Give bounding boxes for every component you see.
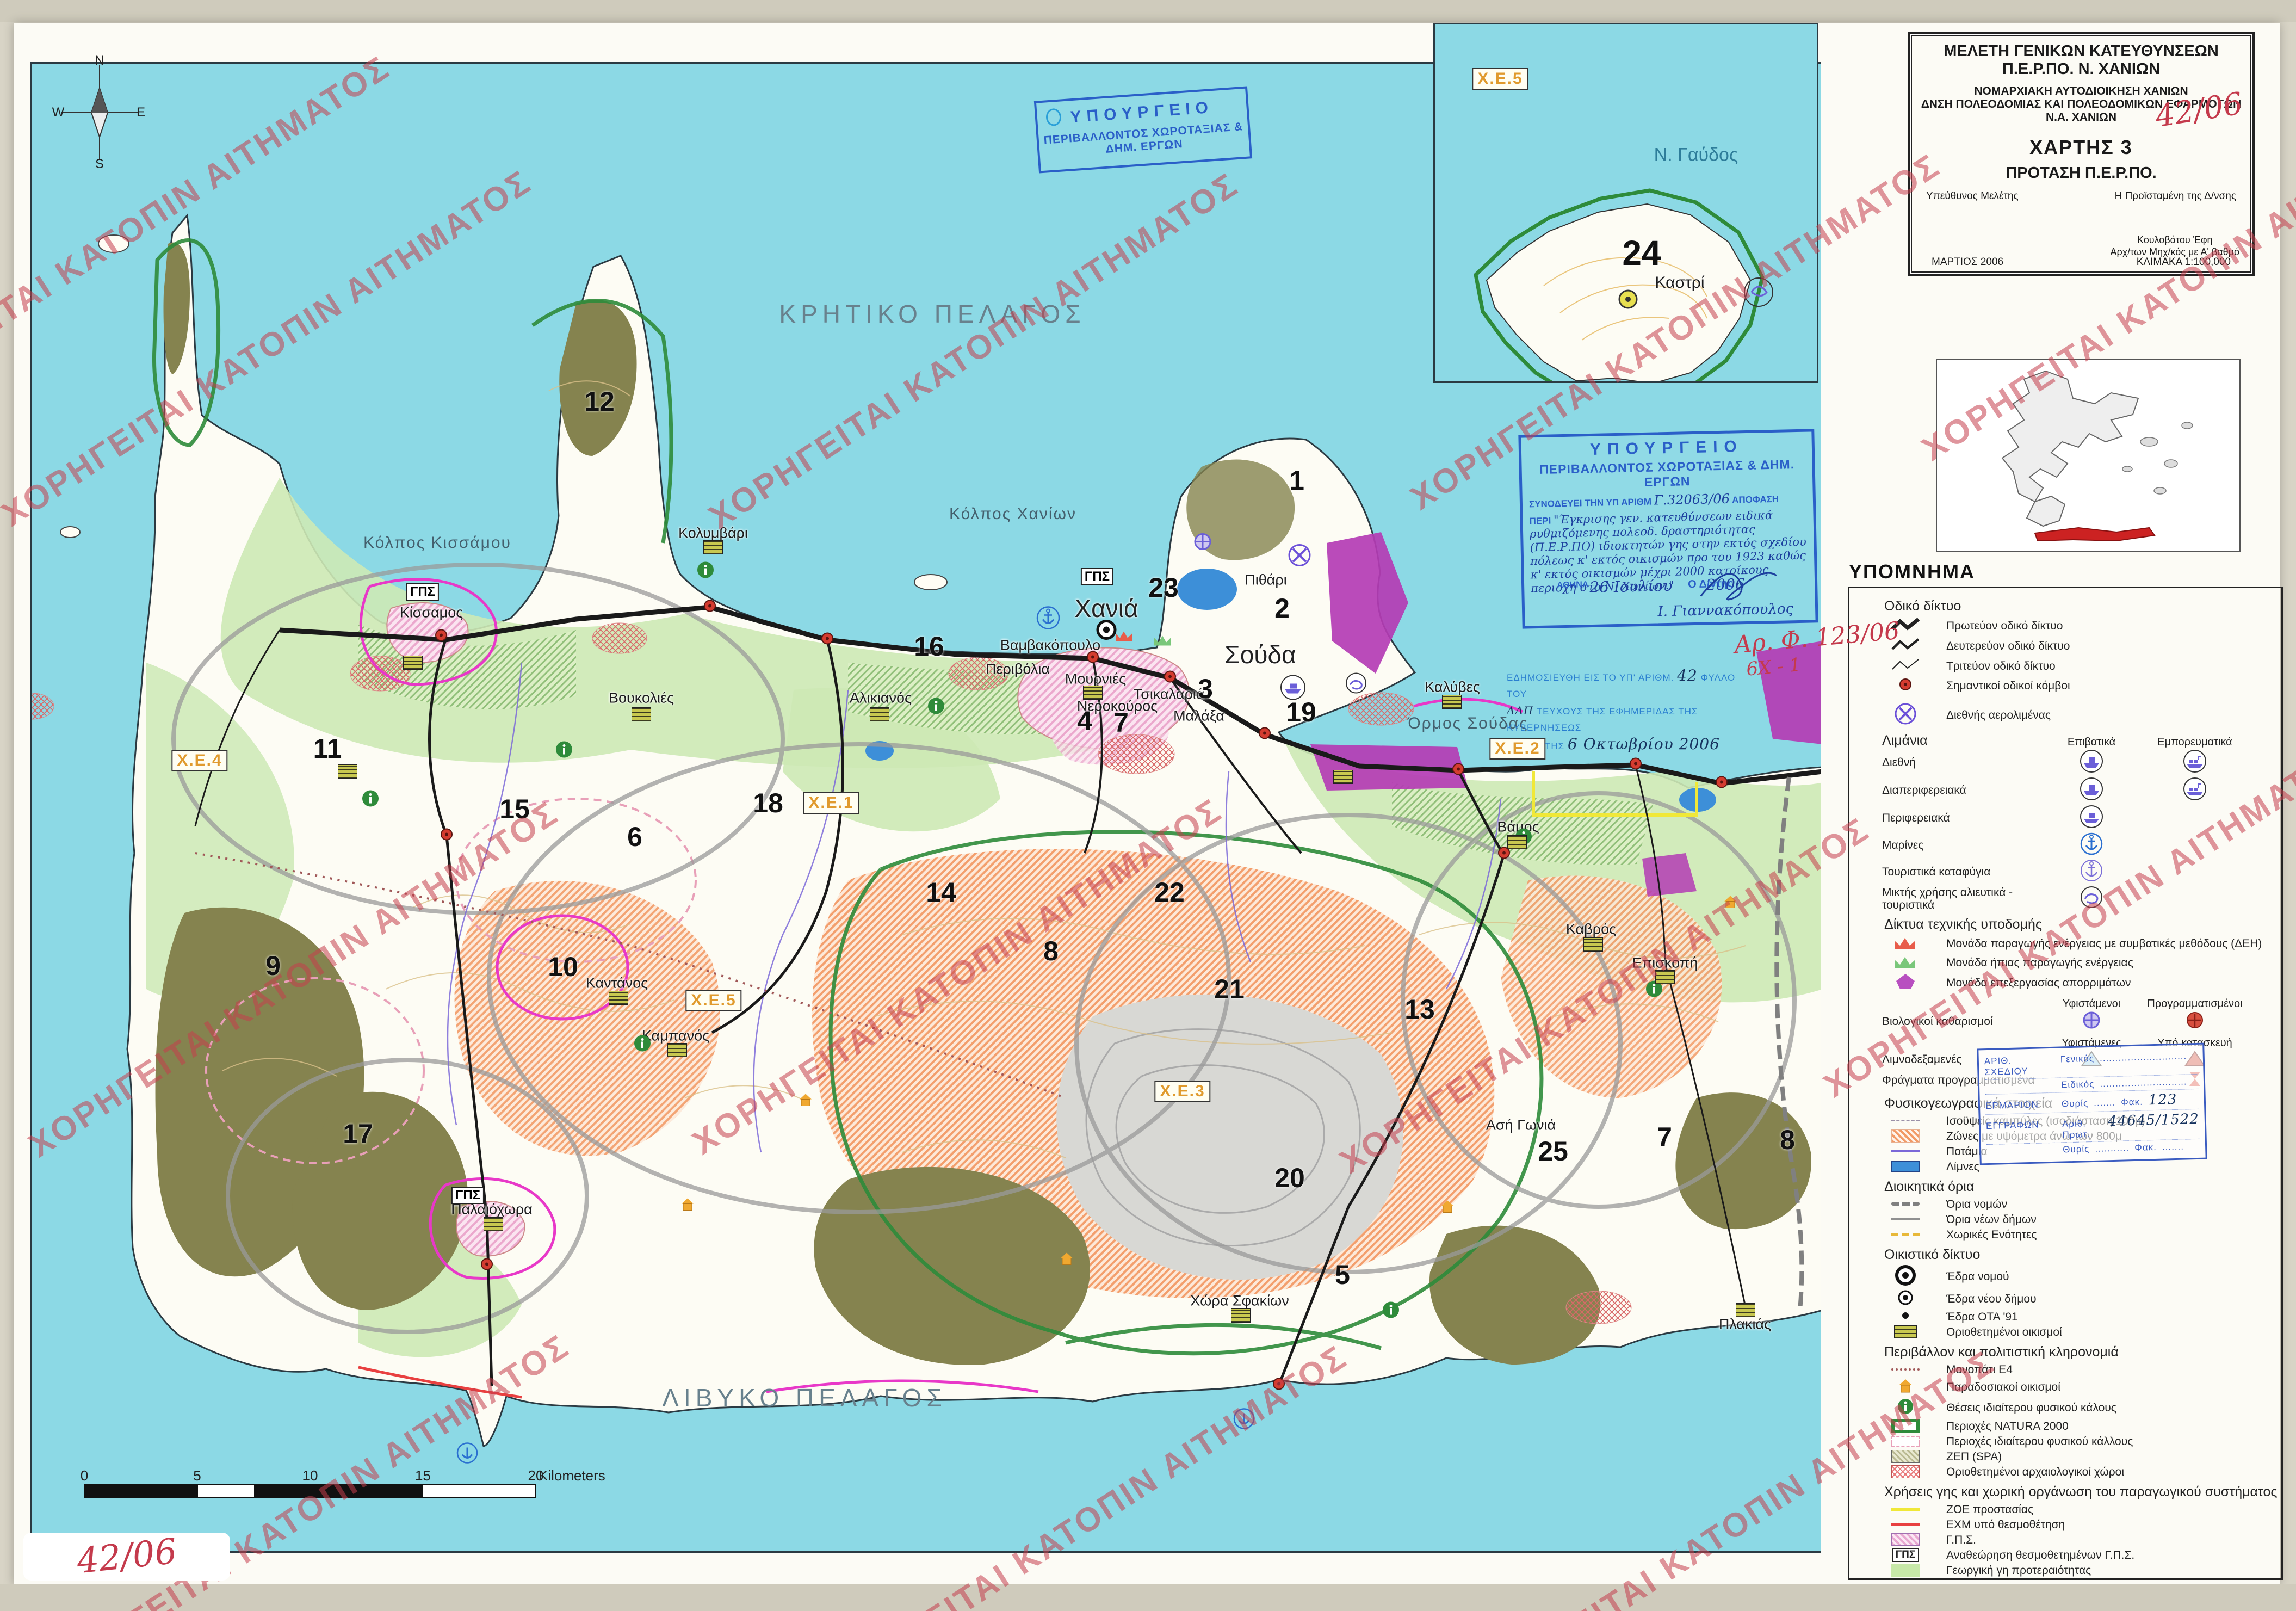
legend-item-label: Περιοχές με δίκτυα άρδευσης [1946,1579,2281,1581]
scalebar-unit: Kilometers [539,1467,605,1484]
legend-item-label: Χωρικές Ενότητες [1946,1229,2281,1241]
settlement-block-icon [1333,770,1353,784]
town-label: Αλικιανός [850,690,912,707]
legend-item-label: Αναθεώρηση θεσμοθετημένων Γ.Π.Σ. [1946,1549,2281,1561]
legend-item-label: Σημαντικοί οδικοί κόμβοι [1946,680,2281,692]
zone-number: 3 [1198,673,1213,705]
town-label: Καβρός [1566,921,1616,938]
gavdos-inset: Χ.Ε.5 Ν. Γαύδος 24 Καστρί [1433,23,1818,383]
settlement-block-icon [1507,835,1527,849]
legend-item: Όρια νέων δήμων [1849,1212,2281,1227]
settlement-block-icon [632,707,651,721]
legend-item-label: Έδρα νέου δήμου [1946,1293,2281,1305]
legend-item: Περιοχές ιδιαίτερου φυσικού κάλλους [1849,1434,2281,1449]
legend-item: ΕΧΜ υπό θεσμοθέτηση [1849,1517,2281,1532]
legend-section-header: Οικιστικό δίκτυο [1849,1247,2281,1263]
scalebar-tick: 0 [81,1467,88,1484]
spatial-unit-label: Χ.Ε.1 [803,792,859,814]
approval-ref-row: ΣΥΝΟΔΕΥΕΙ ΤΗΝ ΥΠ ΑΡΙΘΜ Γ.32063/06 ΑΠΟΦΑΣ… [1529,490,1806,511]
settlement-block-icon [1736,1303,1755,1317]
legend-item: Σημαντικοί οδικοί κόμβοι [1849,676,2281,695]
town-label: Μουρνιές [1065,671,1126,688]
legend-item-icon [1865,1533,1946,1546]
gps-box-label: ΓΠΣ [406,583,439,601]
ministry-stamp: ΥΠΟΥΡΓΕΙΟ ΠΕΡΙΒΑΛΛΟΝΤΟΣ ΧΩΡΟΤΑΞΙΑΣ & ΔΗΜ… [1034,86,1252,173]
legend-item-label: Πρωτεύον οδικό δίκτυο [1946,620,2281,632]
settlement-block-icon [338,764,357,779]
legend-item-label: Οριοθετημένοι οικισμοί [1946,1326,2281,1338]
settlement-block-icon [609,991,628,1005]
town-label: Βουκολιές [609,690,674,707]
legend-item-label: Μαρίνες [1882,839,2040,851]
natural-beauty-icon [361,789,380,811]
legend-item-label: Διεθνής αερολιμένας [1946,709,2281,721]
map-date: ΜΑΡΤΙΟΣ 2006 [1932,256,2003,268]
legend-item: Διεθνή [1849,749,2281,776]
inset-zone-number: 24 [1622,233,1661,273]
legend-item: Οριοθετημένοι αρχαιολογικοί χώροι [1849,1464,2281,1479]
legend-section-header: Περιβάλλον και πολιτιστική κληρονομιά [1849,1344,2281,1360]
legend-section-header: Χρήσεις γης και χωρική οργάνωση του παρα… [1849,1484,2281,1500]
legend-item-label: Διαπεριφερειακά [1882,784,2040,797]
gps-box-label: ΓΠΣ [451,1187,484,1204]
zone-number: 2 [1274,592,1290,624]
traditional-settlement-icon [679,1196,696,1215]
legend-item-label: Παραδοσιακοί οικισμοί [1946,1381,2281,1393]
port-anchor-icon [456,1442,479,1467]
legend-item-icon-2 [2143,749,2247,776]
scalebar-tick: 5 [193,1467,201,1484]
legend-item-icon-2 [2143,1010,2247,1033]
legend-col1-header: Επιβατικά [2040,736,2143,749]
natural-beauty-icon [555,740,573,762]
legend-item: Όρια νομών [1849,1196,2281,1212]
zone-number: 18 [753,787,783,819]
compass-e: E [137,105,145,120]
zone-number: 4 [1077,705,1092,737]
traditional-settlement-icon [1059,1251,1075,1270]
town-label: Μαλάξα [1173,708,1224,725]
inset-town-label: Καστρί [1655,274,1704,292]
legend-item-label: Δευτερεύον οδικό δίκτυο [1946,640,2281,652]
legend-item-label: Μικτής χρήσης αλιευτικά - τουριστικά [1882,886,2040,911]
legend-item-icon [1865,1520,1946,1529]
settlement-block-icon [1231,1308,1251,1323]
legend-item-icon [1865,1325,1946,1338]
legend-item-icon [1865,1116,1946,1126]
airport-icon [1288,544,1311,570]
compass-n: N [95,53,104,69]
legend-section-header: Διοικητικά όρια [1849,1179,2281,1195]
legend-item-icon [1865,972,1946,993]
legend-item-icon [1865,1161,1946,1172]
bay-label: Κόλπος Κισσάμου [363,534,511,552]
spatial-unit-label: Χ.Ε.5 [685,990,741,1011]
legend-item-icon [1865,1465,1946,1478]
publication-stamp: ΕΔΗΜΟΣΙΕΥΘΗ ΕΙΣ ΤΟ ΥΠ' ΑΡΙΘΜ. 42 ΦΥΛΛΟ Τ… [1507,668,1752,755]
road-junction-icon [703,599,717,616]
town-label: Ασή Γωνιά [1486,1117,1556,1134]
legend-item: ΖΕΠ (SPA) [1849,1449,2281,1464]
legend-item: ΓΠΣΑναθεώρηση θεσμοθετημένων Γ.Π.Σ. [1849,1547,2281,1563]
settlement-block-icon [1442,695,1462,709]
legend-item: Έδρα νέου δήμου [1849,1289,2281,1309]
port-mixed-icon [1345,672,1367,698]
legend-item: ΖΟΕ προστασίας [1849,1502,2281,1517]
natural-beauty-icon [696,561,715,582]
zone-number: 10 [548,951,578,983]
legend-item-icon [1865,1310,1946,1324]
legend-item-icon [1865,676,1946,695]
settlement-block-icon [870,707,889,721]
legend-item-icon-1 [2040,804,2143,832]
legend-item-label: Οριοθετημένοι αρχαιολογικοί χώροι [1946,1466,2281,1478]
zone-number: 5 [1335,1259,1350,1291]
archive-stamp: ΑΡΙΘ. ΣΧΕΔΙΟΥ Γενικός...................… [1977,1043,2207,1165]
zone-number: 6 [627,821,642,853]
road-junction-icon [440,828,454,844]
bay-label: Κόλπος Χανίων [949,505,1076,523]
town-label: Καμπανός [642,1028,709,1045]
legend-item-label: Διεθνή [1882,756,2040,769]
town-label: Χώρα Σφακίων [1190,1293,1289,1310]
legend-item-label: Έδρα νομού [1946,1270,2281,1283]
settlement-block-icon [403,656,423,670]
town-label: Καντάνος [586,975,648,992]
legend-item-label: Γ.Π.Σ. [1946,1534,2281,1546]
study-title: ΜΕΛΕΤΗ ΓΕΝΙΚΩΝ ΚΑΤΕΥΘΥΝΣΕΩΝ Π.Ε.Ρ.ΠΟ. Ν.… [1910,42,2252,78]
road-junction-icon [434,628,448,645]
legend-item-icon [1865,953,1946,972]
settlement-block-icon [703,540,723,554]
zone-number: 16 [914,631,944,662]
approval-line1: ΥΠΟΥΡΓΕΙΟ [1528,436,1806,461]
legend-item-icon-1 [2040,832,2143,859]
town-label: Κίσσαμος [400,604,463,621]
legend-item: Έδρα ΟΤΑ '91 [1849,1309,2281,1324]
settlement-block-icon [1583,937,1603,952]
legend-item-label: Μονάδα παραγωγής ενέργειας με συμβατικές… [1946,937,2281,950]
legend-section-header: Οδικό δίκτυο [1849,598,2281,614]
legend-col2-header: Προγραμματισμένοι [2143,998,2247,1010]
sea-label: ΛΙΒΥΚΟ ΠΕΛΑΓΟΣ [662,1383,947,1412]
legend-item-label: Όρια νομών [1946,1198,2281,1211]
town-label: Περιβόλια [986,661,1050,678]
legend-item: Έδρα νομού [1849,1264,2281,1289]
zone-number: 7 [1657,1121,1672,1153]
port-ship-icon [1279,674,1307,704]
legend-item: Γεωργική γη προτεραιότητας [1849,1563,2281,1578]
legend-item: Διεθνής αερολιμένας [1849,702,2281,729]
natural-beauty-icon [633,1034,652,1056]
legend-item: Γ.Π.Σ. [1849,1532,2281,1547]
road-junction-icon [1086,650,1100,667]
legend-item-icon [1865,702,1946,729]
approval-ref-handwritten: Γ.32063/06 [1654,491,1730,508]
town-label: Πιθάρι [1245,572,1286,589]
publication-issue-handwritten: 42 [1677,666,1698,684]
legend-item-icon [1865,1579,1946,1580]
road-junction-icon [1629,757,1643,774]
natural-beauty-icon [927,697,945,718]
approval-stamp: ΥΠΟΥΡΓΕΙΟ ΠΕΡΙΒΑΛΛΟΝΤΟΣ ΧΩΡΟΤΑΞΙΑΣ & ΔΗΜ… [1518,429,1818,628]
legend-item: Οριοθετημένοι οικισμοί [1849,1324,2281,1340]
zone-number: 21 [1214,973,1245,1005]
legend-item-icon [1865,1289,1946,1309]
road-junction-icon [480,1257,494,1274]
legend-col2-header: Εμπορευματικά [2143,736,2247,749]
legend-header: ΥΠΟΜΝΗΜΑ [1849,560,1975,583]
signature-scribble [1694,557,1783,607]
legend-column-headers: ΥφιστάμενοιΠρογραμματισμένοι [1849,998,2281,1010]
legend-item: Μονοπάτι Ε4 [1849,1362,2281,1377]
zone-number: 17 [343,1118,373,1150]
zone-number: 14 [926,877,956,908]
port-anchor-icon [1036,606,1061,633]
legend-item-icon-1 [2040,776,2143,804]
road-junction-icon [1258,726,1272,743]
legend-section-header: Λιμάνια [1882,733,2040,749]
legend-item: Μικτής χρήσης αλιευτικά - τουριστικά [1849,885,2281,912]
settlement-block-icon [484,1217,503,1231]
zone-number: 13 [1404,993,1435,1025]
legend-item: Μονάδα επεξεργασίας απορριμάτων [1849,972,2281,993]
approval-signature-name: Ι. Γιαννακόπουλος [1657,601,1793,620]
legend-item-icon [1865,1146,1946,1156]
legend-item-icon-2 [2143,776,2247,804]
legend-item-icon-1 [2040,1010,2143,1033]
greece-key-map [1936,359,2241,552]
town-label: Σούδα [1224,640,1296,669]
legend-item-label: ΕΧΜ υπό θεσμοθέτηση [1946,1519,2281,1531]
legend-column-headers: ΛιμάνιαΕπιβατικάΕμπορευματικά [1849,733,2281,749]
zone-number: 1 [1289,465,1304,496]
gps-box-label: ΓΠΣ [1081,568,1113,585]
compass-rose: N S W E [56,55,143,170]
legend-item-icon [1865,1199,1946,1209]
approval-city: ΑΘΗΝΑ [1557,580,1589,590]
legend-item: Διαπεριφερειακά [1849,776,2281,804]
scanned-map-sheet: ΚΡΗΤΙΚΟ ΠΕΛΑΓΟΣΛΙΒΥΚΟ ΠΕΛΑΓΟΣΚόλπος Κισσ… [0,0,2296,1611]
legend-col1-header: Υφιστάμενοι [2040,998,2143,1010]
legend-item: Περιοχές με δίκτυα άρδευσης [1849,1578,2281,1580]
road-junction-icon [820,632,834,649]
publication-date-handwritten: 6 Οκτωβρίου 2006 [1568,735,1720,753]
legend-item: Τριτεύον οδικό δίκτυο [1849,656,2281,676]
role-right: Η Προϊσταμένη της Δ/νσης [2115,190,2236,202]
zone-number: 22 [1154,877,1185,908]
compass-w: W [52,105,65,120]
legend-item-icon: ΓΠΣ [1865,1548,1946,1562]
road-junction-icon [1451,762,1465,779]
legend-item: Χωρικές Ενότητες [1849,1227,2281,1242]
legend-item: Τουριστικά καταφύγια [1849,859,2281,885]
role-left: Υπεύθυνος Μελέτης [1926,190,2019,202]
legend-item: Πρωτεύον οδικό δίκτυο [1849,616,2281,636]
legend-item-label: Περιφερειακά [1882,812,2040,824]
compass-s: S [95,157,104,172]
zone-number: 25 [1538,1135,1568,1167]
legend-item-icon [1865,1504,1946,1514]
energy-unit-icon [1115,628,1133,645]
legend-item-icon [1865,934,1946,953]
legend-item-label: ΖΕΠ (SPA) [1946,1450,2281,1463]
legend-item: Δευτερεύον οδικό δίκτυο [1849,636,2281,656]
scalebar-ticks: 05101520Kilometers [84,1467,536,1484]
legend-item-label: ΖΟΕ προστασίας [1946,1503,2281,1516]
road-junction-icon [1163,670,1177,687]
map-subtitle: ΠΡΟΤΑΣΗ Π.Ε.Ρ.ΠΟ. [1910,164,2252,182]
town-label: Τσικαλαριά [1134,686,1205,703]
inset-island-label: Ν. Γαύδος [1654,145,1738,166]
spatial-unit-label: Χ.Ε.3 [1154,1081,1210,1102]
zone-number: 11 [313,733,342,764]
zone-number: 7 [1113,707,1129,738]
legend-item-icon [1865,1230,1946,1239]
legend-item-label: Τριτεύον οδικό δίκτυο [1946,660,2281,672]
road-junction-icon [1715,775,1729,792]
traditional-settlement-icon [1439,1199,1456,1218]
legend-item-icon-1 [2040,749,2143,776]
legend-item-label: Περιοχές ιδιαίτερου φυσικού κάλλους [1946,1435,2281,1448]
zone-number: 20 [1274,1162,1305,1194]
spatial-unit-label: Χ.Ε.4 [171,750,227,771]
town-label: Καλύβες [1425,679,1480,696]
inset-xe-label: Χ.Ε.5 [1472,68,1528,90]
legend-item-icon [1865,1564,1946,1577]
scalebar-tick: 15 [415,1467,431,1484]
natural-beauty-icon [1382,1301,1400,1322]
town-label: Πλακιάς [1719,1316,1771,1333]
legend-item-label: Όρια νέων δήμων [1946,1213,2281,1226]
legend-item-label: Περιοχές NATURA 2000 [1946,1420,2281,1433]
legend-item-icon [1865,1214,1946,1224]
legend-item-label: Θέσεις ιδιαίτερου φυσικού κάλους [1946,1402,2281,1414]
zone-number: 12 [584,386,615,417]
settlement-block-icon [667,1043,687,1057]
seat-of-prefecture-icon [1096,619,1117,644]
legend-item-label: Έδρα ΟΤΑ '91 [1946,1311,2281,1323]
zone-number: 23 [1148,572,1179,603]
approval-line2: ΠΕΡΙΒΑΛΛΟΝΤΟΣ ΧΩΡΟΤΑΞΙΑΣ & ΔΗΜ. ΕΡΓΩΝ [1528,457,1806,492]
legend-item-icon [1865,1129,1946,1143]
legend-item-label: Γεωργική γη προτεραιότητας [1946,1564,2281,1577]
settlement-block-icon [1083,686,1103,700]
zone-number: 8 [1780,1124,1795,1156]
title-block: ΜΕΛΕΤΗ ΓΕΝΙΚΩΝ ΚΑΤΕΥΘΥΝΣΕΩΝ Π.Ε.Ρ.ΠΟ. Ν.… [1908,32,2255,276]
corner-number-label: 42/06 [23,1533,230,1581]
bio-treatment-icon [1193,533,1212,554]
legend-item-icon [1865,1264,1946,1289]
map-number: ΧΑΡΤΗΣ 3 [1910,136,2252,159]
legend-item-label: Τουριστικά καταφύγια [1882,866,2040,878]
soft-energy-icon [1153,633,1172,650]
